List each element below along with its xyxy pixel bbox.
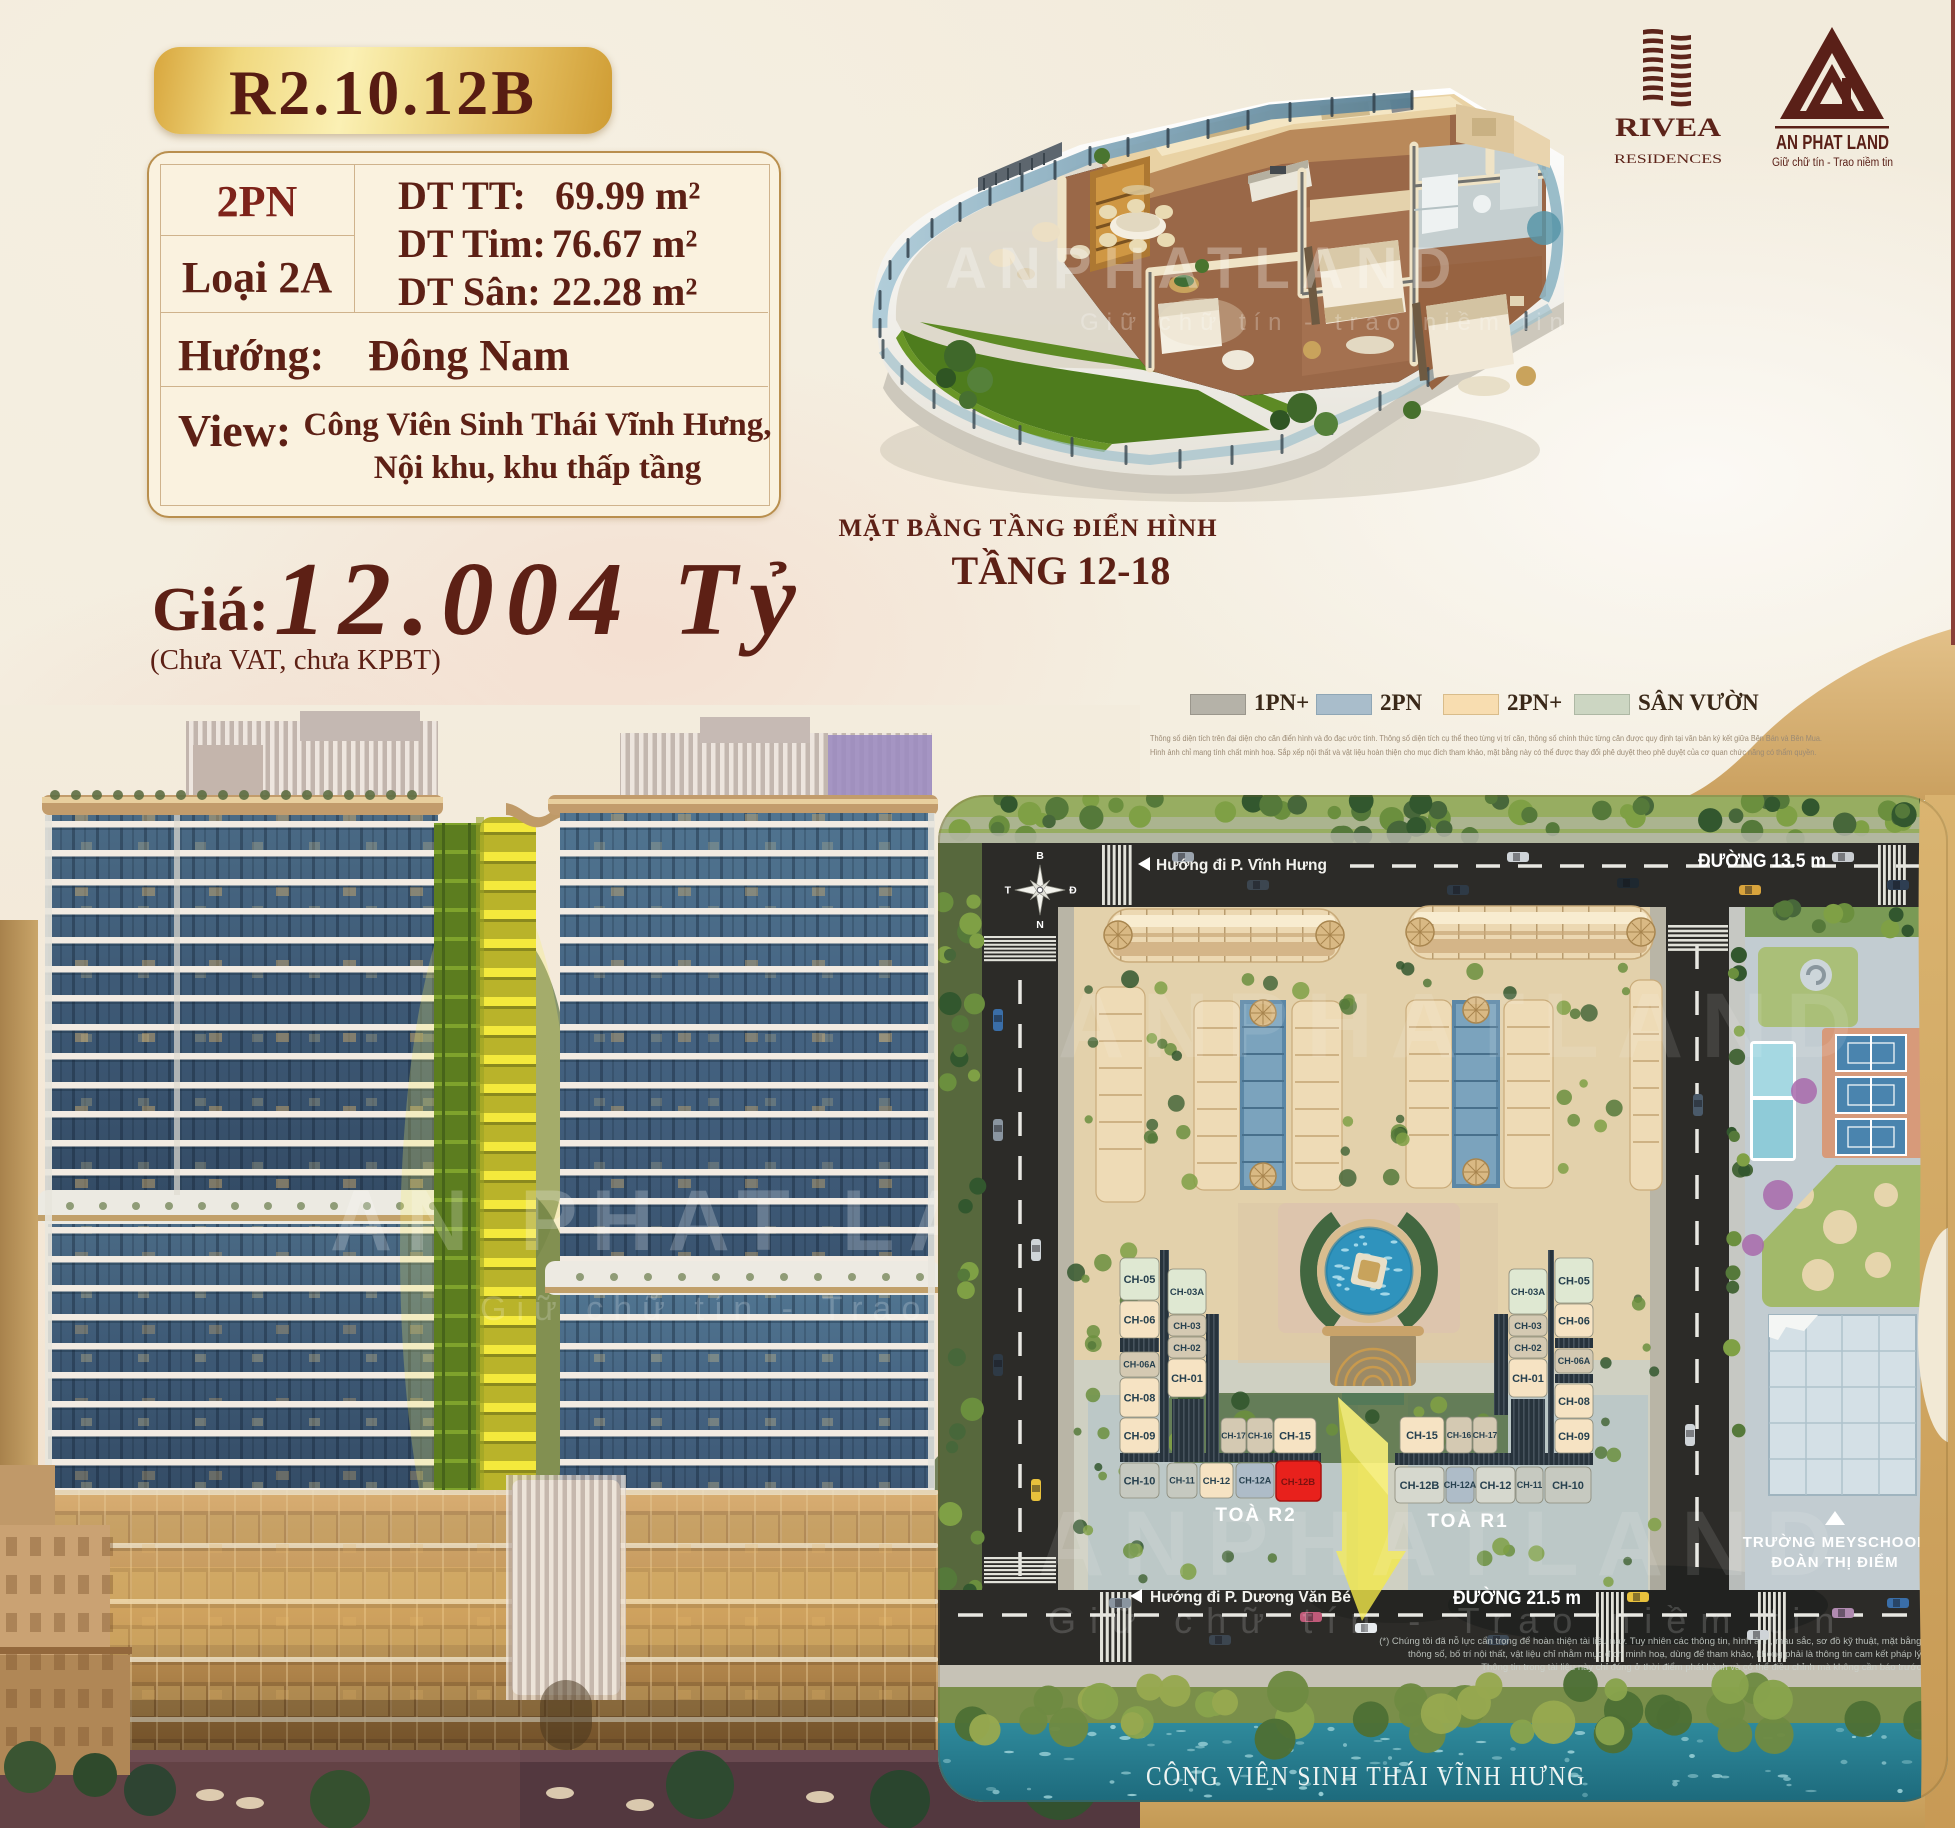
svg-text:CH-12: CH-12 [1203, 1476, 1230, 1487]
svg-text:Đ: Đ [1069, 885, 1077, 897]
svg-text:ĐƯỜNG 13.5 m: ĐƯỜNG 13.5 m [1698, 850, 1826, 872]
svg-text:ANPHATLAND: ANPHATLAND [945, 236, 1463, 301]
svg-text:CH-12B: CH-12B [1281, 1477, 1315, 1488]
svg-text:CH-06: CH-06 [1558, 1315, 1590, 1327]
svg-text:ANPHATLAND: ANPHATLAND [1038, 1493, 1850, 1595]
svg-text:CH-06: CH-06 [1124, 1314, 1156, 1326]
svg-text:AN PHAT LAND: AN PHAT LAND [1776, 132, 1889, 154]
svg-text:CH-06A: CH-06A [1123, 1360, 1156, 1370]
svg-text:CH-03A: CH-03A [1170, 1287, 1204, 1298]
svg-text:CH-12: CH-12 [1480, 1480, 1512, 1492]
svg-text:CH-12A: CH-12A [1444, 1480, 1477, 1490]
svg-text:CH-17: CH-17 [1473, 1430, 1498, 1440]
svg-text:Hướng đi P. Vĩnh Hưng: Hướng đi P. Vĩnh Hưng [1156, 857, 1327, 874]
svg-text:CH-16: CH-16 [1248, 1431, 1273, 1441]
svg-text:CH-06A: CH-06A [1558, 1356, 1591, 1366]
svg-text:CH-02: CH-02 [1173, 1343, 1200, 1354]
svg-text:CH-16: CH-16 [1447, 1430, 1472, 1440]
svg-text:CH-10: CH-10 [1124, 1475, 1156, 1487]
svg-text:Giữ chữ tín - trao niềm tin: Giữ chữ tín - trao niềm tin [1080, 309, 1570, 336]
svg-text:CH-09: CH-09 [1558, 1431, 1590, 1443]
svg-text:CH-03: CH-03 [1173, 1321, 1200, 1332]
svg-text:CH-05: CH-05 [1124, 1274, 1156, 1286]
svg-text:CH-10: CH-10 [1552, 1480, 1584, 1492]
svg-text:CH-01: CH-01 [1512, 1373, 1544, 1385]
svg-text:CH-11: CH-11 [1169, 1476, 1195, 1486]
svg-text:N: N [1036, 919, 1044, 931]
svg-text:Giữ chữ tín - Trao niềm ti: Giữ chữ tín - Trao niềm tin [1048, 1600, 1848, 1641]
svg-text:CH-01: CH-01 [1171, 1373, 1203, 1385]
svg-text:CH-15: CH-15 [1279, 1430, 1311, 1442]
svg-text:B: B [1036, 850, 1044, 862]
svg-text:RIVEA: RIVEA [1615, 113, 1721, 142]
svg-text:CH-03: CH-03 [1514, 1321, 1541, 1332]
svg-text:CH-12B: CH-12B [1400, 1480, 1440, 1492]
svg-text:CH-15: CH-15 [1406, 1430, 1438, 1442]
svg-text:CÔNG VIÊN SINH THÁI VĨNH HƯNG: CÔNG VIÊN SINH THÁI VĨNH HƯNG [1146, 1761, 1586, 1791]
svg-text:CH-17: CH-17 [1221, 1431, 1246, 1441]
svg-text:CH-12A: CH-12A [1239, 1476, 1272, 1486]
svg-text:Thông tin trong tài liệu này c: Thông tin trong tài liệu này chỉ đúng ở … [1481, 1662, 1924, 1673]
svg-text:CH-03A: CH-03A [1511, 1287, 1545, 1298]
svg-text:CH-08: CH-08 [1124, 1392, 1156, 1404]
svg-text:Giữ chữ tín - Trao niềm tin: Giữ chữ tín - Trao niềm tin [1772, 157, 1893, 169]
svg-text:ANPHATLAND: ANPHATLAND [1058, 975, 1870, 1077]
svg-text:CH-09: CH-09 [1124, 1430, 1156, 1442]
svg-text:CH-02: CH-02 [1514, 1343, 1541, 1354]
svg-text:CH-05: CH-05 [1558, 1275, 1590, 1287]
svg-text:CH-08: CH-08 [1558, 1396, 1590, 1408]
svg-text:T: T [1005, 885, 1012, 897]
svg-text:thông số, bố trí nội thất, vật: thông số, bố trí nội thất, vật liệu chỉ … [1408, 1649, 1924, 1660]
svg-text:CH-11: CH-11 [1517, 1480, 1543, 1490]
svg-text:RESIDENCES: RESIDENCES [1614, 152, 1722, 166]
